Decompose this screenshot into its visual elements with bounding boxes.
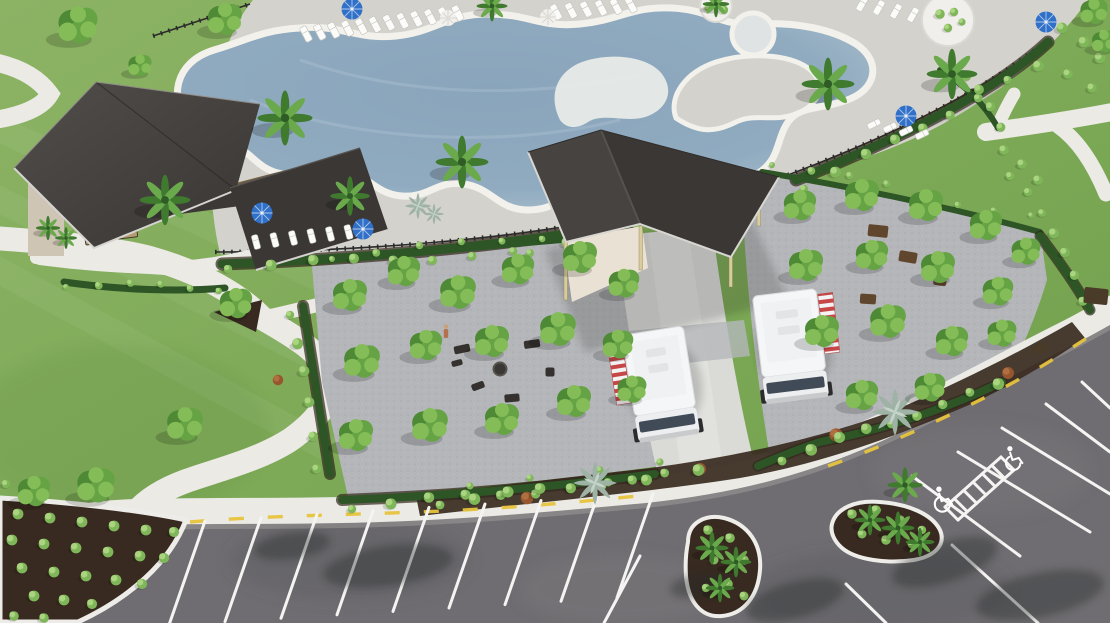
blue-umbrella	[1036, 12, 1057, 33]
pavilion-post	[729, 257, 733, 287]
agave-plant	[424, 204, 445, 225]
amenity-center-rendering: Aerial 3D rendering of a community ameni…	[0, 0, 1110, 623]
grove-furniture	[860, 293, 877, 304]
agave-plant	[405, 193, 432, 220]
blue-umbrella	[252, 203, 273, 224]
spa-circle	[732, 13, 774, 55]
white-umbrella	[540, 9, 556, 25]
blue-umbrella	[353, 219, 374, 240]
rust-shrub	[1002, 367, 1014, 379]
white-umbrella	[440, 10, 456, 26]
blue-umbrella	[896, 106, 917, 127]
grove-furniture	[1083, 287, 1109, 305]
pavilion-post	[639, 226, 643, 270]
grove-furniture	[867, 224, 888, 238]
rust-shrub	[273, 375, 284, 386]
grove-furniture	[504, 393, 520, 402]
agave-plant	[573, 461, 617, 505]
fire-pit	[494, 363, 507, 376]
grove-furniture	[546, 368, 555, 377]
aerial-rendering-stage: Aerial 3D rendering of a community ameni…	[0, 0, 1110, 623]
round-planter	[922, 0, 974, 46]
person	[444, 324, 448, 338]
grove-furniture	[1033, 344, 1048, 353]
